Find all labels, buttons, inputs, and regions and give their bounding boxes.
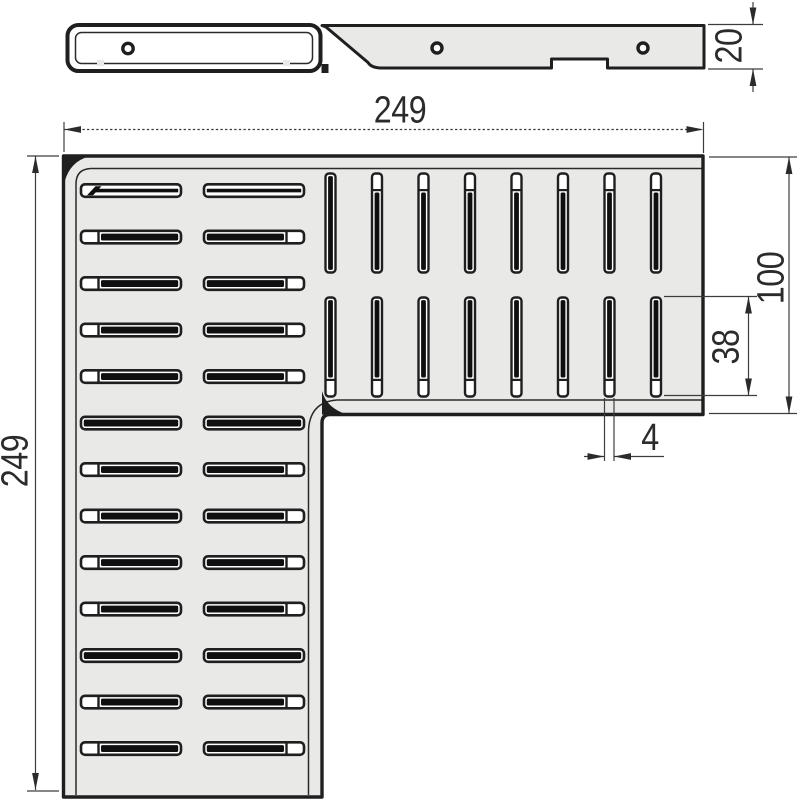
- horizontal-slot: [81, 463, 181, 476]
- arrowhead-down: [786, 397, 793, 414]
- dim-top-width-label: 249: [374, 89, 427, 131]
- vertical-slot: [512, 174, 522, 273]
- horizontal-slot: [81, 231, 181, 244]
- vertical-slot: [605, 174, 615, 273]
- horizontal-slot: [81, 603, 181, 616]
- horizontal-slot: [81, 556, 181, 569]
- horizontal-slot: [81, 370, 181, 383]
- vertical-slot: [372, 174, 382, 273]
- arrowhead-left: [614, 453, 631, 460]
- arrowhead-up: [32, 156, 39, 173]
- horizontal-slot: [81, 184, 181, 197]
- side-view-edge-profile-inner-line: [76, 33, 313, 64]
- side-view-screw-hole: [432, 43, 442, 53]
- horizontal-slot: [204, 324, 304, 337]
- horizontal-slot: [204, 277, 304, 290]
- corner-grate-drawing: 20 249 249 100: [0, 0, 799, 800]
- horizontal-slot: [204, 649, 304, 662]
- dim-slot-width-label: 4: [641, 416, 659, 458]
- horizontal-slot: [81, 696, 181, 709]
- horizontal-slot: [204, 231, 304, 244]
- arrowhead-right: [588, 453, 605, 460]
- arrowhead-down: [745, 379, 752, 396]
- dimension-profile-height: 20: [708, 2, 763, 92]
- arrowhead-down: [750, 8, 757, 25]
- horizontal-slot: [204, 742, 304, 755]
- plate-fold-line-wing: [309, 400, 702, 795]
- horizontal-slot: [81, 417, 181, 430]
- arrowhead-left: [64, 126, 81, 133]
- horizontal-slot: [204, 184, 304, 197]
- horizontal-slot: [204, 556, 304, 569]
- horizontal-slot: [81, 277, 181, 290]
- vertical-slot: [558, 298, 568, 397]
- vertical-slot: [419, 298, 429, 397]
- vertical-slot: [465, 174, 475, 273]
- horizontal-slot: [81, 324, 181, 337]
- side-view-bottom-notch: [97, 60, 104, 66]
- arrowhead-right: [687, 126, 704, 133]
- arrowhead-up: [786, 157, 793, 174]
- plan-view: [63, 155, 703, 797]
- dim-left-height-label: 249: [0, 435, 36, 488]
- side-view-bottom-notch: [283, 60, 290, 66]
- vertical-slot: [512, 298, 522, 397]
- dimension-wing-width: 100: [709, 157, 797, 414]
- horizontal-slot: [204, 463, 304, 476]
- dim-slot-length-label: 38: [705, 329, 747, 364]
- horizontal-slot: [204, 417, 304, 430]
- horizontal-slot: [204, 370, 304, 383]
- vertical-slot: [465, 298, 475, 397]
- vertical-slot: [326, 298, 336, 397]
- vertical-slot: [651, 298, 661, 397]
- vertical-slot: [605, 298, 615, 397]
- vertical-slot: [651, 174, 661, 273]
- horizontal-slot: [81, 742, 181, 755]
- vertical-slot: [326, 174, 336, 273]
- horizontal-slot: [204, 510, 304, 523]
- vertical-slot: [372, 298, 382, 397]
- dimension-left-height: 249: [0, 156, 59, 791]
- vertical-slot: [558, 174, 568, 273]
- vertical-slot: [419, 174, 429, 273]
- arrowhead-up: [750, 69, 757, 86]
- horizontal-slot: [81, 510, 181, 523]
- horizontal-slot: [204, 696, 304, 709]
- side-view-foot-tab: [322, 64, 329, 73]
- side-view-left-screw-hole: [123, 43, 133, 53]
- side-view-screw-hole: [638, 43, 648, 53]
- dimension-top-width: 249: [64, 89, 704, 153]
- technical-drawing-page: 20 249 249 100: [0, 0, 799, 800]
- dim-profile-height-label: 20: [708, 28, 750, 63]
- side-view: [68, 25, 705, 73]
- arrowhead-down: [32, 773, 39, 790]
- horizontal-slot: [204, 603, 304, 616]
- horizontal-slot: [81, 649, 181, 662]
